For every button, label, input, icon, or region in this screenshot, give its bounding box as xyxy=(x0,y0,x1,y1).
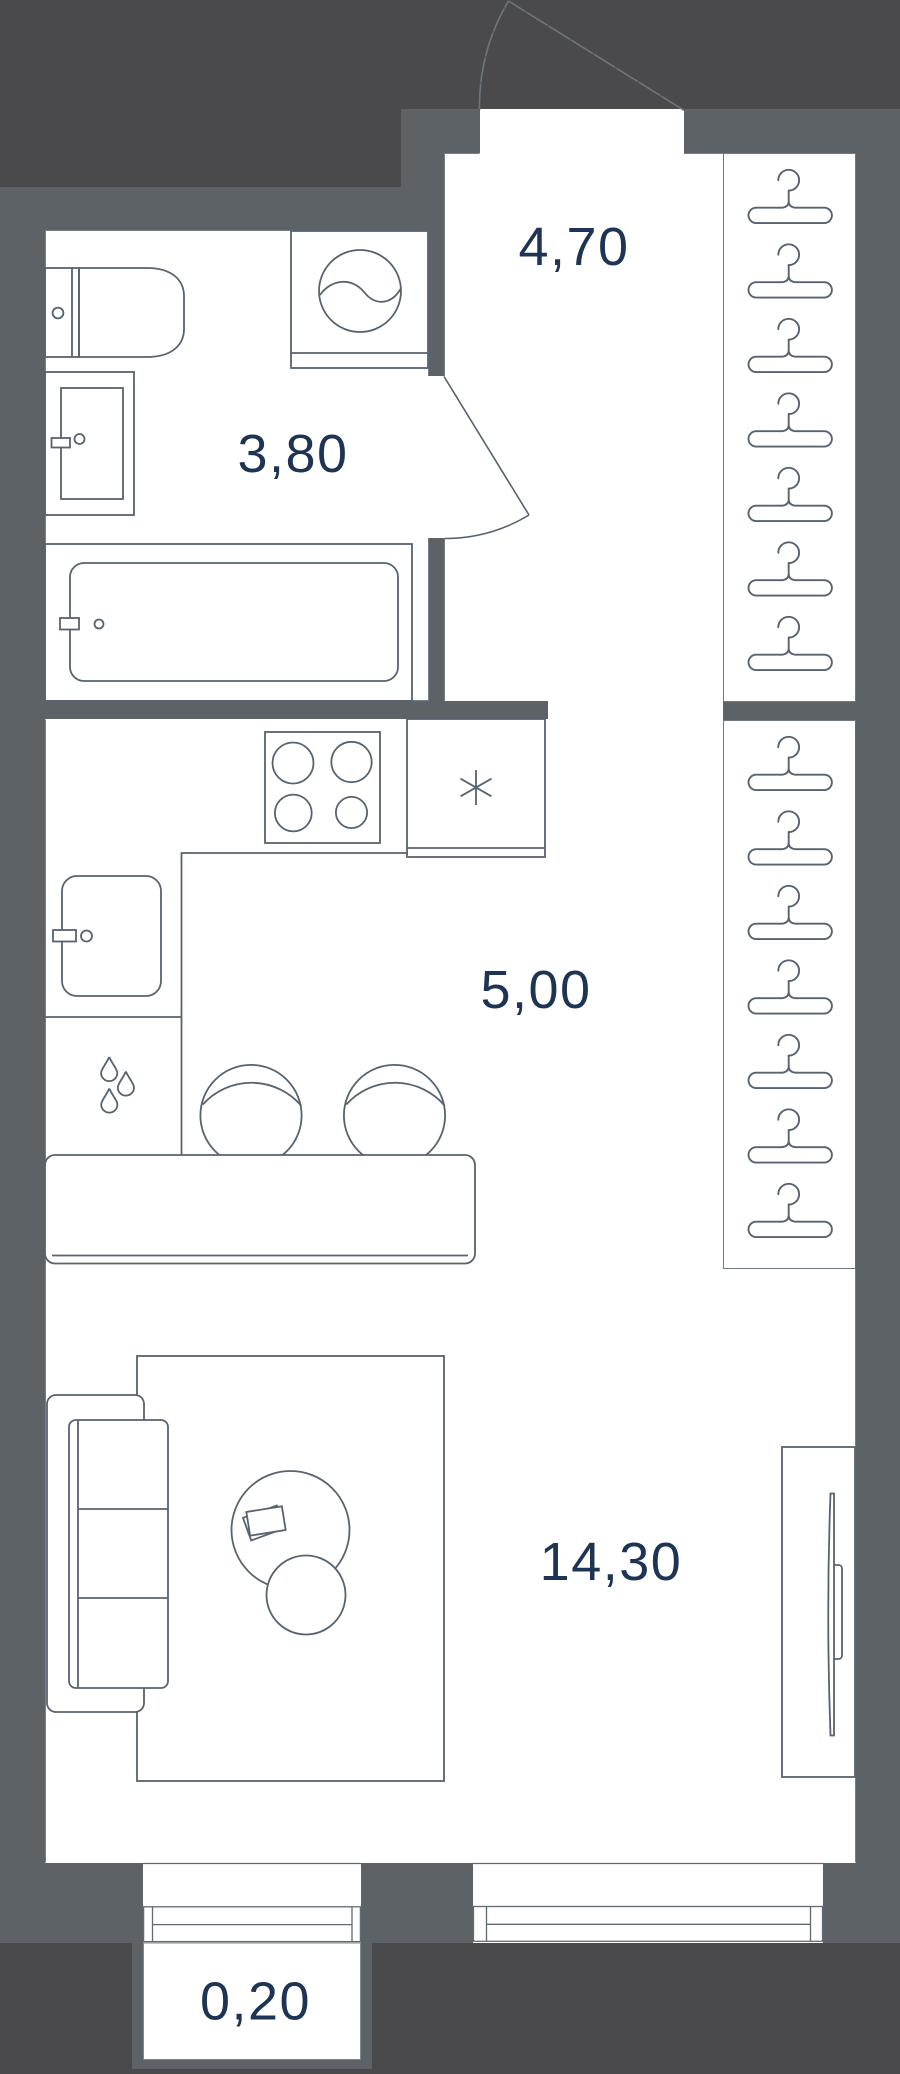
svg-text:14,30: 14,30 xyxy=(540,1532,683,1592)
svg-text:3,80: 3,80 xyxy=(237,424,348,484)
svg-text:0,20: 0,20 xyxy=(200,1972,311,2032)
svg-text:4,70: 4,70 xyxy=(518,217,629,277)
svg-text:5,00: 5,00 xyxy=(480,960,591,1020)
